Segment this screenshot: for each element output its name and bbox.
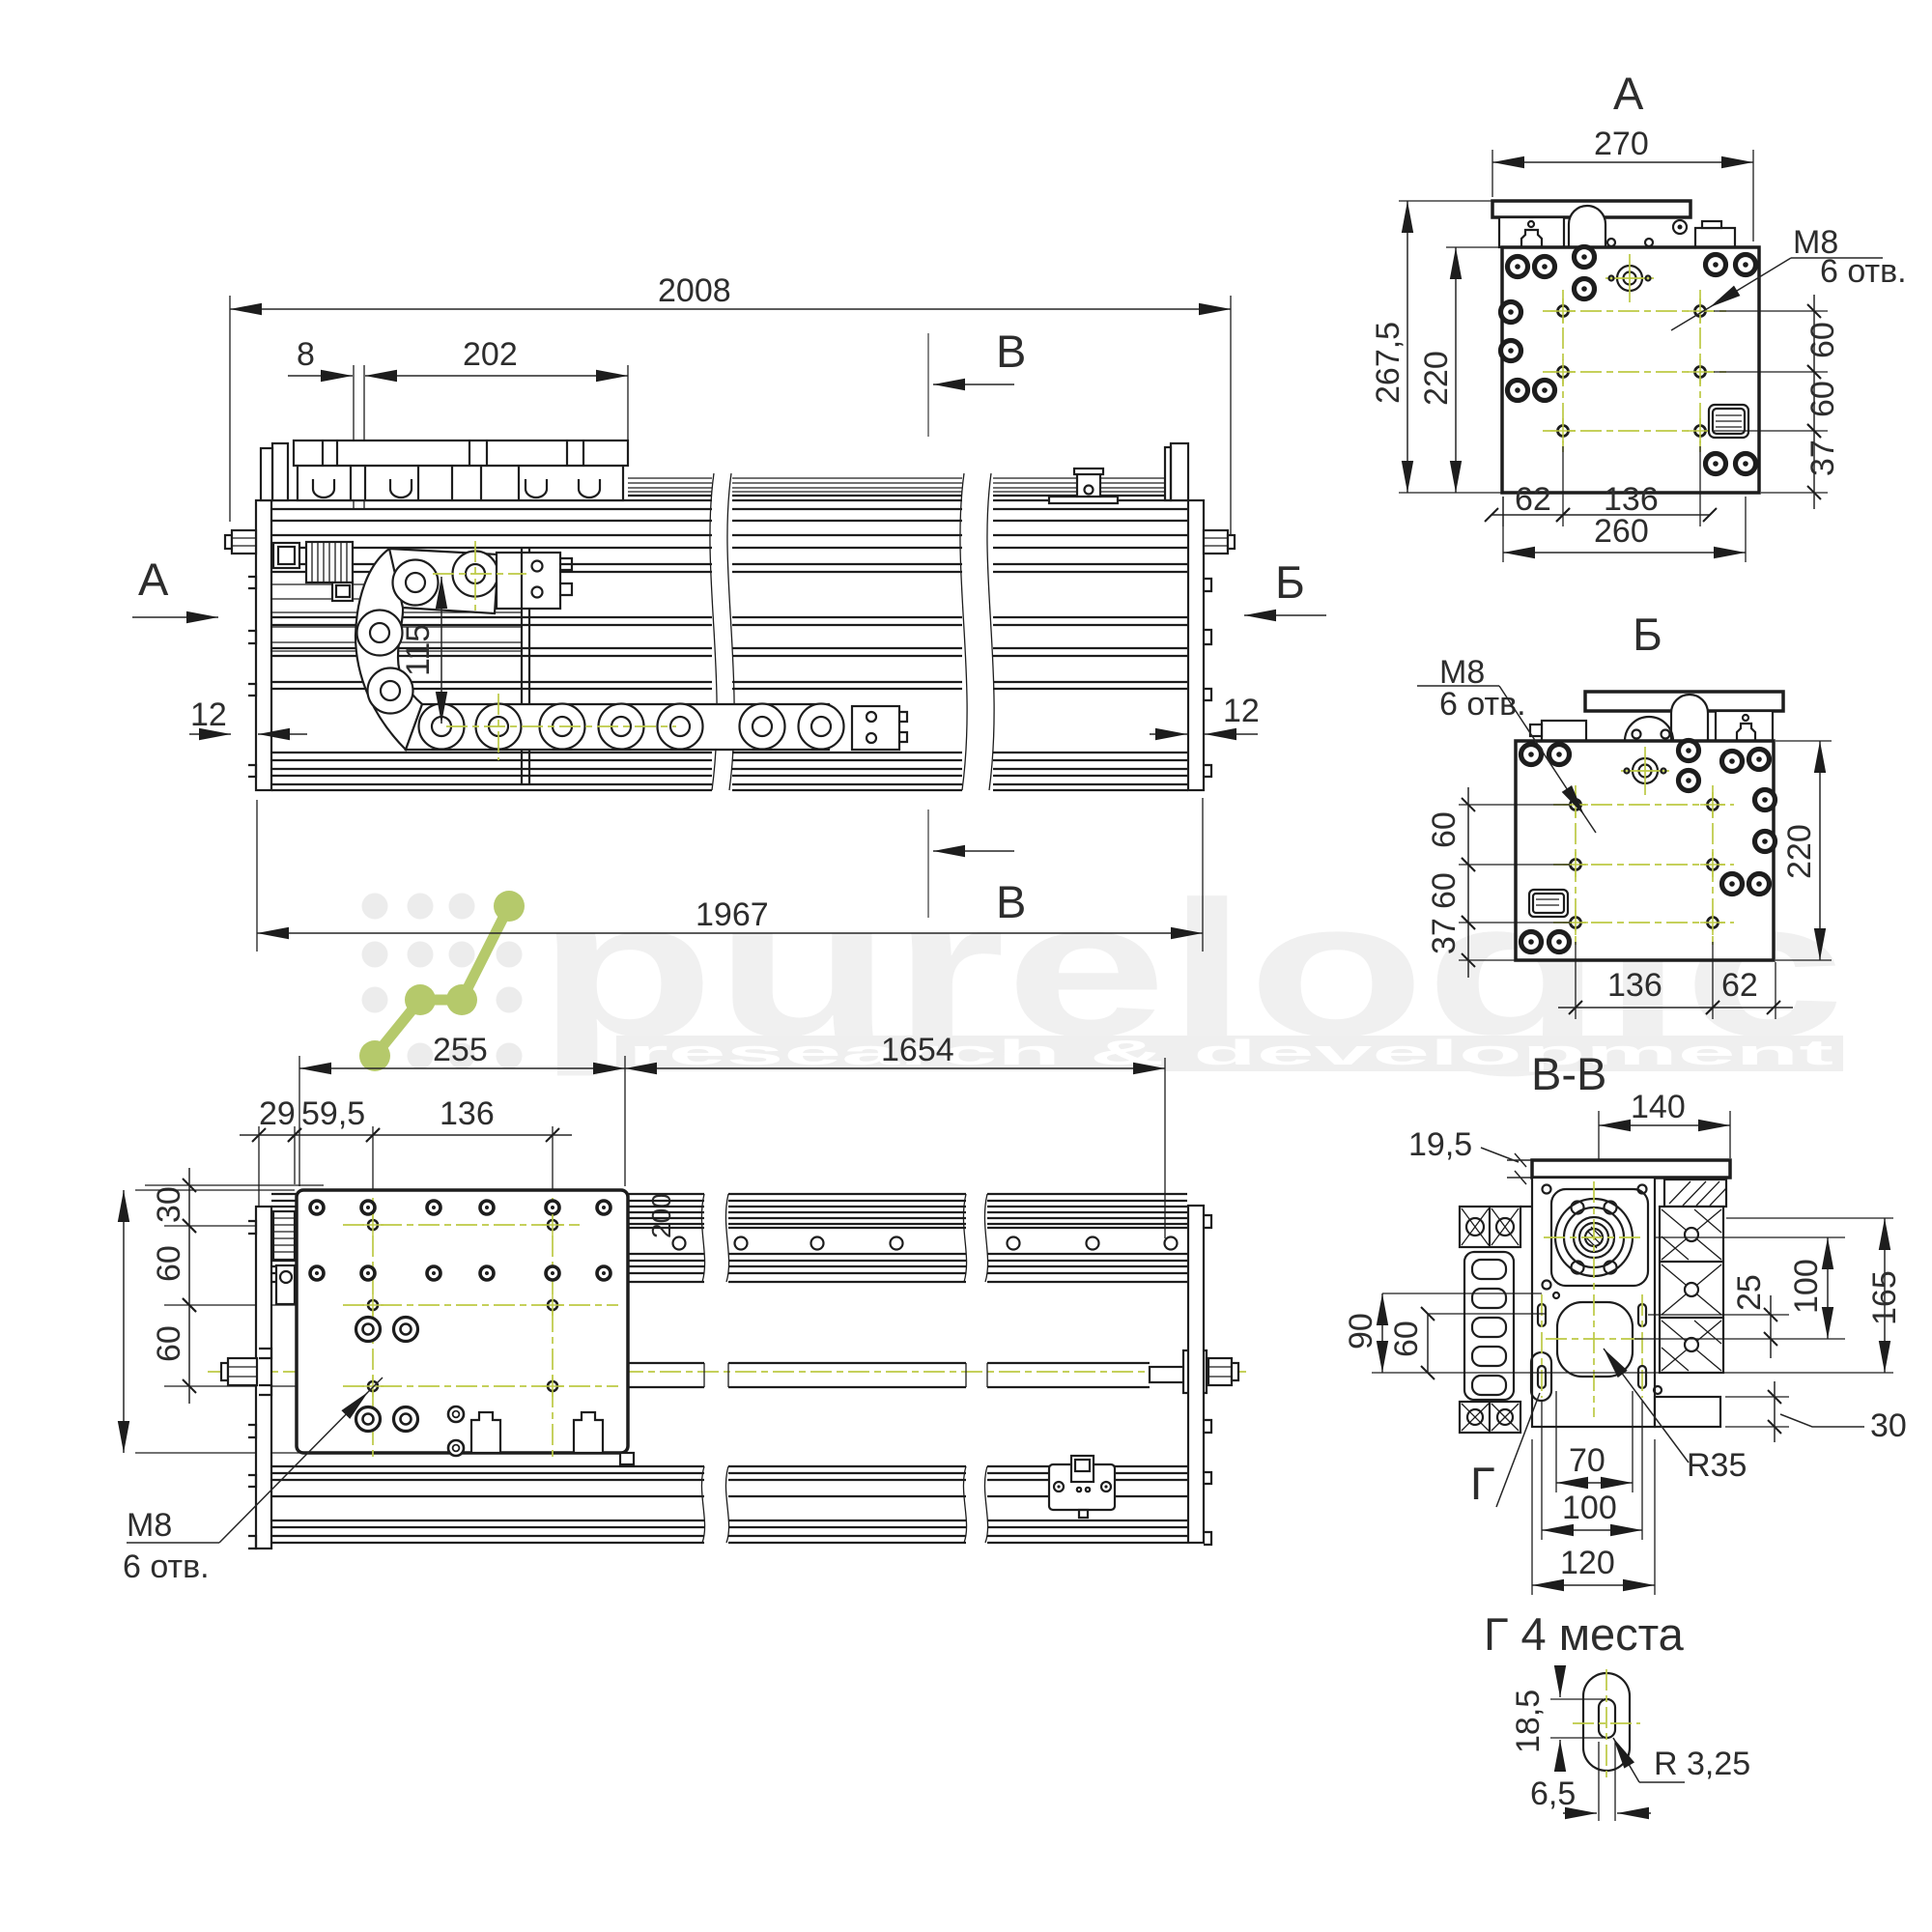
svg-text:12: 12 [1223, 693, 1260, 729]
svg-text:М8: М8 [127, 1507, 172, 1544]
svg-text:6 отв.: 6 отв. [123, 1548, 210, 1585]
svg-text:60: 60 [1388, 1321, 1425, 1357]
svg-text:202: 202 [463, 336, 518, 373]
svg-text:В: В [996, 876, 1026, 927]
svg-text:120: 120 [1560, 1545, 1615, 1581]
svg-text:19,5: 19,5 [1408, 1126, 1472, 1163]
svg-text:37: 37 [1426, 918, 1463, 954]
svg-text:30: 30 [1870, 1407, 1907, 1444]
svg-text:60: 60 [151, 1325, 187, 1362]
svg-text:В-В: В-В [1531, 1048, 1606, 1099]
svg-text:60: 60 [1804, 381, 1841, 417]
svg-text:60: 60 [1426, 872, 1463, 909]
svg-text:220: 220 [1418, 351, 1455, 406]
svg-text:research & development: research & development [628, 1033, 1833, 1072]
svg-text:12: 12 [190, 696, 227, 733]
svg-text:2008: 2008 [658, 272, 731, 309]
svg-text:Б: Б [1633, 609, 1662, 660]
svg-text:90: 90 [1343, 1313, 1379, 1350]
svg-text:1967: 1967 [696, 896, 769, 933]
svg-text:60: 60 [1804, 322, 1841, 358]
svg-text:115: 115 [400, 624, 437, 676]
svg-text:62: 62 [1721, 967, 1758, 1004]
svg-text:260: 260 [1594, 513, 1649, 550]
svg-text:100: 100 [1788, 1259, 1825, 1314]
svg-text:R35: R35 [1687, 1447, 1747, 1484]
svg-text:R 3,25: R 3,25 [1654, 1746, 1750, 1782]
svg-text:8: 8 [297, 336, 315, 373]
svg-text:267,5: 267,5 [1370, 322, 1406, 404]
svg-text:6,5: 6,5 [1530, 1776, 1576, 1812]
svg-text:60: 60 [151, 1245, 187, 1282]
svg-text:В: В [996, 326, 1026, 377]
svg-text:136: 136 [440, 1095, 495, 1132]
svg-text:70: 70 [1569, 1442, 1605, 1479]
svg-text:А: А [1613, 68, 1644, 119]
svg-text:1654: 1654 [881, 1032, 954, 1068]
svg-text:Б: Б [1275, 556, 1305, 608]
svg-text:Г: Г [1470, 1458, 1494, 1509]
svg-text:255: 255 [433, 1032, 488, 1068]
svg-text:100: 100 [1562, 1490, 1617, 1526]
svg-text:18,5: 18,5 [1510, 1690, 1547, 1753]
svg-text:270: 270 [1594, 126, 1649, 162]
svg-text:140: 140 [1631, 1089, 1686, 1125]
svg-text:37: 37 [1804, 440, 1841, 476]
svg-text:29: 29 [259, 1095, 296, 1132]
svg-text:62: 62 [1515, 481, 1551, 518]
svg-text:30: 30 [151, 1186, 187, 1223]
svg-text:136: 136 [1607, 967, 1662, 1004]
svg-text:А: А [138, 554, 169, 605]
svg-text:220: 220 [1781, 824, 1818, 879]
svg-text:165: 165 [1866, 1270, 1903, 1325]
svg-text:60: 60 [1426, 811, 1463, 848]
svg-text:59,5: 59,5 [301, 1095, 365, 1132]
svg-text:25: 25 [1731, 1274, 1768, 1311]
svg-text:6 отв.: 6 отв. [1439, 686, 1526, 723]
svg-text:Г 4 места: Г 4 места [1484, 1608, 1685, 1660]
